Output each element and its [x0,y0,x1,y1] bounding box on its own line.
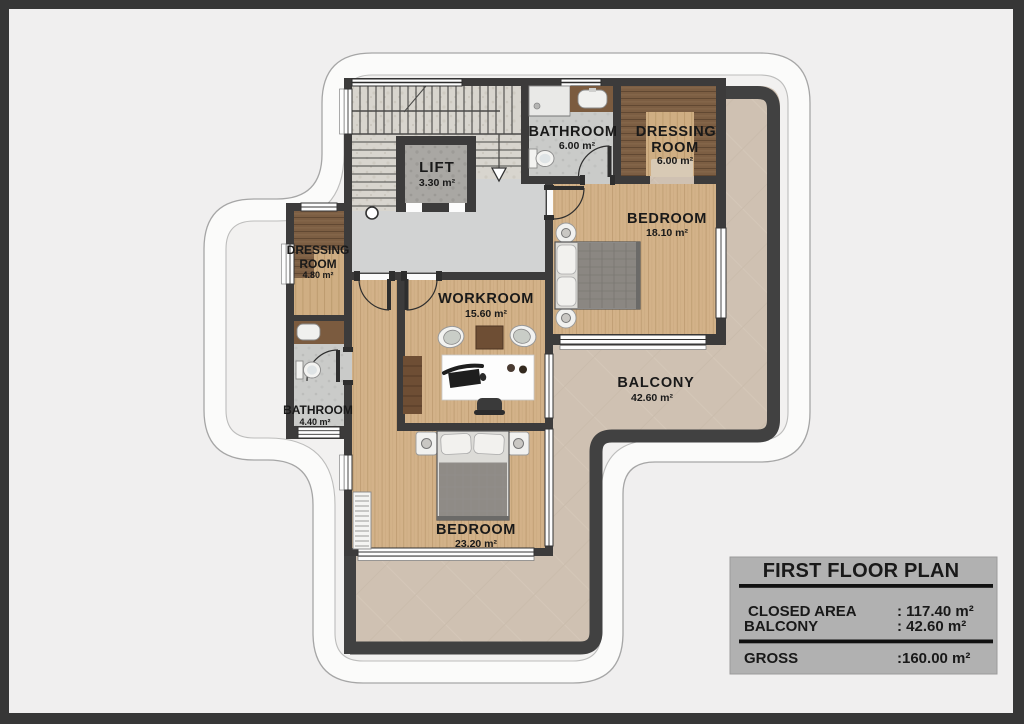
svg-text:LIFT: LIFT [419,159,455,176]
svg-text:ROOM: ROOM [299,257,336,271]
svg-text:DRESSING: DRESSING [287,243,350,257]
svg-text:4.40 m²: 4.40 m² [299,417,330,427]
svg-text:23.20 m²: 23.20 m² [455,538,498,550]
svg-text:4.80 m²: 4.80 m² [302,270,333,280]
svg-text:3.30 m²: 3.30 m² [419,177,456,189]
svg-text:ROOM: ROOM [651,140,699,156]
svg-text:6.00 m²: 6.00 m² [559,140,596,152]
svg-text:BEDROOM: BEDROOM [436,522,516,538]
svg-text:FIRST FLOOR PLAN: FIRST FLOOR PLAN [763,560,960,582]
svg-text:15.60 m²: 15.60 m² [465,308,508,320]
svg-text:: 42.60 m²: : 42.60 m² [897,618,966,635]
svg-text:BATHROOM: BATHROOM [283,403,353,417]
svg-text:GROSS: GROSS [744,650,798,667]
svg-text:BEDROOM: BEDROOM [627,211,707,227]
svg-text::160.00 m²: :160.00 m² [897,650,970,667]
svg-text:WORKROOM: WORKROOM [438,291,534,307]
svg-text:BALCONY: BALCONY [617,375,694,391]
svg-text:BALCONY: BALCONY [744,618,818,635]
svg-text:18.10 m²: 18.10 m² [646,227,689,239]
svg-text:6.00 m²: 6.00 m² [657,155,694,167]
svg-text:BATHROOM: BATHROOM [528,124,617,140]
svg-text:DRESSING: DRESSING [636,124,717,140]
svg-text:42.60 m²: 42.60 m² [631,392,674,404]
